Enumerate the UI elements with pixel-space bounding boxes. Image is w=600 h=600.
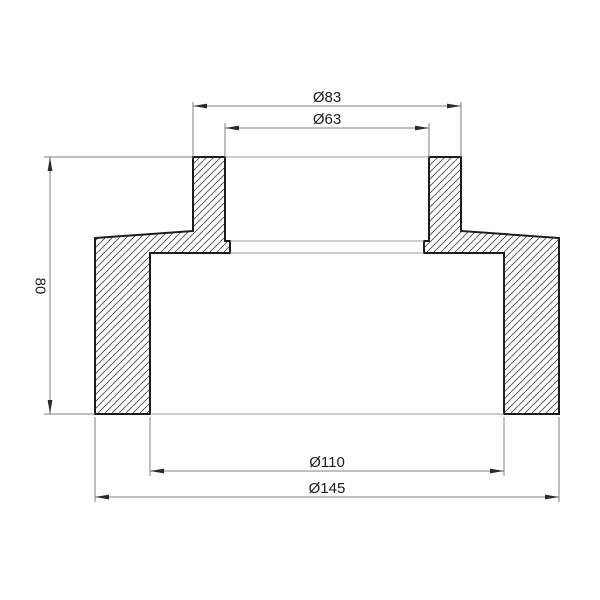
technical-drawing-canvas: Ø83 Ø63 80 Ø110 <box>0 0 600 600</box>
drawing-page: Ø83 Ø63 80 Ø110 <box>0 0 600 600</box>
dim-label-inner-bottom-diameter: Ø110 <box>309 454 345 471</box>
dim-label-outer-bottom-diameter: Ø145 <box>309 480 346 497</box>
dim-label-inner-top-diameter: Ø63 <box>313 111 341 128</box>
dim-label-height: 80 <box>32 278 49 295</box>
dim-label-outer-top-diameter: Ø83 <box>313 89 341 106</box>
